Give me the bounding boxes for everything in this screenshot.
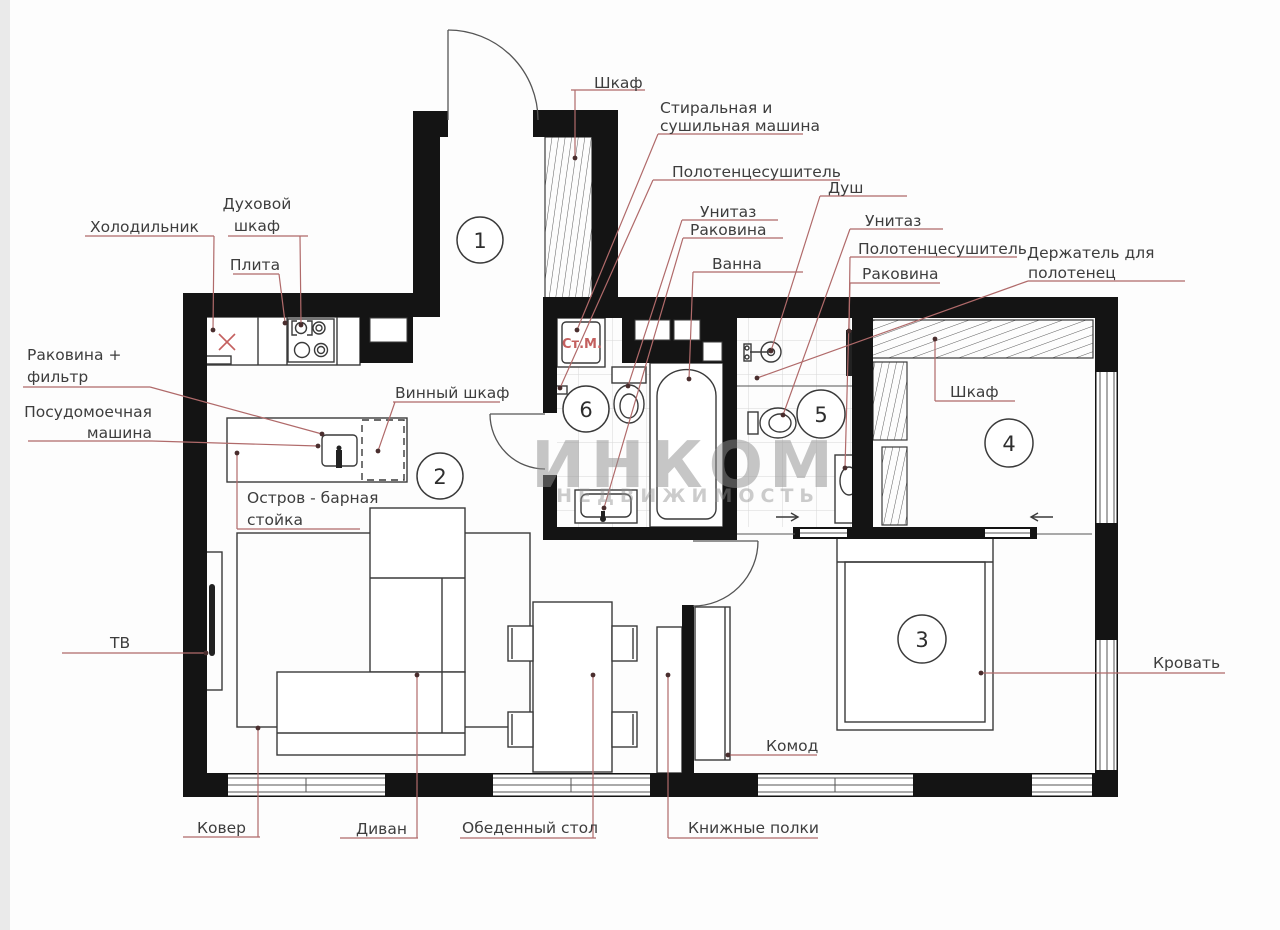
label-sink-filter-line2: фильтр [27, 368, 88, 386]
label-towel-holder-line1: Держатель для [1027, 244, 1154, 262]
label-entry-wardrobe: Шкаф [594, 74, 643, 92]
dresser [695, 607, 730, 760]
label-washer-line1: Стиральная и [660, 99, 772, 117]
window-bottom-4 [1032, 775, 1092, 796]
label-towel-dryer-left: Полотенцесушитель [672, 163, 841, 181]
toilet-bathroom [612, 367, 646, 423]
bedroom-door [693, 541, 758, 606]
label-dresser: Комод [766, 737, 818, 755]
label-shower: Душ [828, 179, 863, 197]
window-right-1 [1097, 372, 1117, 523]
closet-wardrobe-hatch-left [873, 362, 907, 525]
room-circle-5: 5 [797, 390, 845, 438]
dining-table [533, 602, 612, 772]
label-oven-line1: Духовой [223, 195, 292, 213]
floor-plan-drawing: ИНКОМ НЕДВИЖИМОСТЬ 1 2 3 4 5 6 Шкаф Стир… [0, 0, 1280, 930]
label-island-line2: стойка [247, 511, 303, 529]
label-washer-line2: сушильная машина [660, 117, 820, 135]
room-circle-1: 1 [457, 217, 503, 263]
hall-wardrobe-hatch [545, 137, 592, 307]
label-washing-machine-abbr: Ст.М. [562, 337, 602, 352]
label-dining-table: Обеденный стол [462, 819, 598, 837]
label-bath: Ванна [712, 255, 762, 273]
floor-plan-page: ИНКОМ НЕДВИЖИМОСТЬ 1 2 3 4 5 6 Шкаф Стир… [0, 0, 1280, 930]
bookshelves [657, 627, 682, 773]
label-closet-wardrobe: Шкаф [950, 383, 999, 401]
room-circle-6: 6 [563, 386, 609, 432]
label-bookshelves: Книжные полки [688, 819, 819, 837]
window-bottom-2 [493, 775, 650, 796]
label-sofa: Диван [356, 820, 407, 838]
tv-screen [209, 584, 215, 656]
label-toilet-left: Унитаз [700, 203, 756, 221]
scan-edge [0, 0, 10, 930]
room-number-5: 5 [814, 403, 827, 427]
room-circle-4: 4 [985, 419, 1033, 467]
entrance-door [448, 30, 538, 120]
room-number-6: 6 [579, 398, 592, 422]
label-wine-cabinet: Винный шкаф [395, 384, 510, 402]
room-number-2: 2 [433, 465, 446, 489]
label-tv: ТВ [109, 634, 130, 652]
label-island-line1: Остров - барная [247, 489, 379, 507]
label-sink-right: Раковина [862, 265, 939, 283]
label-stove: Плита [230, 256, 280, 274]
slide-arrow-left-icon [1031, 513, 1053, 521]
sofa [277, 508, 465, 755]
island-sink [322, 435, 357, 468]
label-carpet: Ковер [197, 819, 246, 837]
label-towel-dryer-right: Полотенцесушитель [858, 240, 1027, 258]
room-circle-3: 3 [898, 615, 946, 663]
label-sink-filter-line1: Раковина + [27, 346, 121, 364]
room-number-1: 1 [473, 229, 486, 253]
watermark-line2: НЕДВИЖИМОСТЬ [556, 485, 820, 507]
label-towel-holder-line2: полотенец [1028, 264, 1116, 282]
label-bed: Кровать [1153, 654, 1220, 672]
room-number-3: 3 [915, 628, 928, 652]
label-dishwasher-line1: Посудомоечная [24, 403, 152, 421]
label-dishwasher-line2: машина [87, 424, 152, 442]
window-right-2 [1097, 640, 1117, 770]
label-sink-left: Раковина [690, 221, 767, 239]
window-bottom-3 [758, 775, 913, 796]
room-number-4: 4 [1002, 432, 1015, 456]
window-bottom-1 [228, 775, 385, 796]
label-fridge: Холодильник [90, 218, 199, 236]
label-oven-line2: шкаф [234, 217, 280, 235]
label-toilet-right: Унитаз [865, 212, 921, 230]
room-circle-2: 2 [417, 453, 463, 499]
watermark: ИНКОМ НЕДВИЖИМОСТЬ [531, 429, 839, 507]
